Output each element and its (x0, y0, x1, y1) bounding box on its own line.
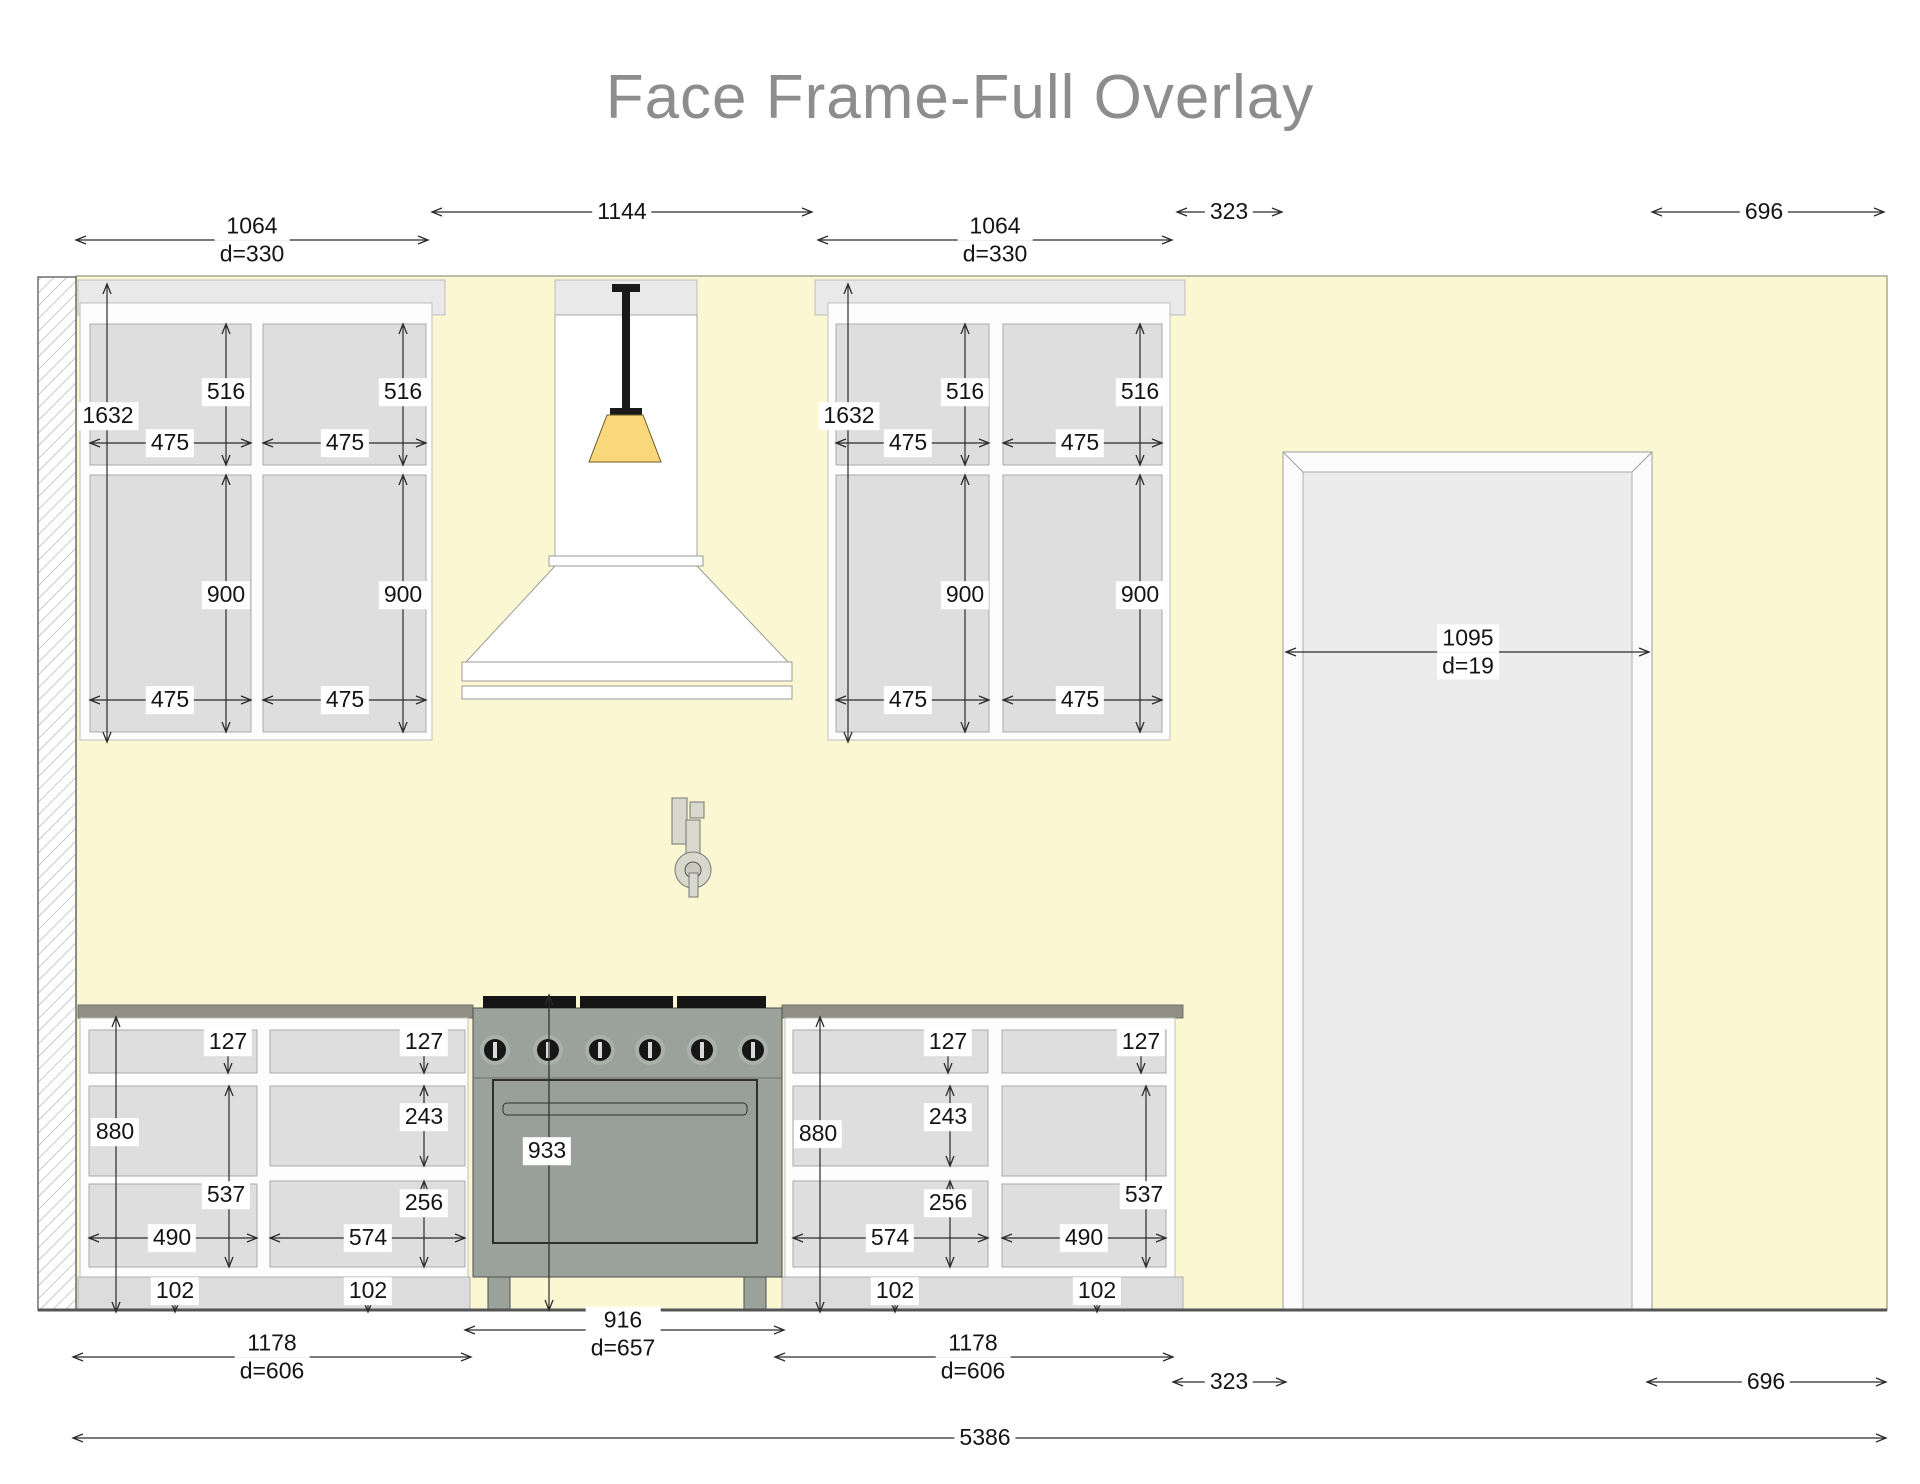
dim-value: 243 (924, 1103, 972, 1131)
dim-value: 102 (344, 1277, 392, 1305)
dim-label: 323 (1205, 1368, 1253, 1396)
dim-value: 574 (344, 1224, 392, 1252)
countertop-left (78, 1005, 473, 1018)
dim-value: 475 (321, 429, 369, 457)
door-panel (1303, 472, 1632, 1310)
dim-value: 1064 (958, 212, 1033, 240)
dim-depth-value: d=19 (1437, 652, 1499, 680)
dim-label: 537 (1120, 1181, 1168, 1209)
dim-value: 127 (1117, 1028, 1165, 1056)
dim-value: 574 (866, 1224, 914, 1252)
drawing-title: Face Frame-Full Overlay (0, 62, 1920, 133)
dim-value: 475 (884, 686, 932, 714)
burner-grate (580, 996, 673, 1008)
dim-value: 1632 (818, 402, 879, 430)
pot-filler-spout (689, 873, 698, 897)
upper-cabinet-right (828, 303, 1170, 740)
dim-value: 516 (202, 378, 250, 406)
dim-depth-value: d=657 (586, 1334, 661, 1362)
dim-value: 490 (148, 1224, 196, 1252)
countertop-right (782, 1005, 1183, 1018)
dim-value: 900 (379, 581, 427, 609)
dim-label: 475 (321, 686, 369, 714)
dim-value: 323 (1205, 198, 1253, 226)
hood-band-upper (462, 662, 792, 681)
interior-door (1283, 452, 1652, 1310)
hood-top-rail (549, 556, 703, 566)
dim-label: 127 (400, 1028, 448, 1056)
dim-value: 916 (586, 1306, 661, 1334)
dim-value: 5386 (954, 1424, 1015, 1452)
dim-label: 916d=657 (586, 1306, 661, 1361)
dim-label: 475 (146, 686, 194, 714)
dim-value: 696 (1740, 198, 1788, 226)
toe-kick-right (782, 1277, 1183, 1310)
range (473, 996, 782, 1311)
dim-label: 102 (344, 1277, 392, 1305)
dim-label: 900 (202, 581, 250, 609)
dim-label: 490 (1060, 1224, 1108, 1252)
dim-value: 256 (924, 1189, 972, 1217)
dim-label: 1144 (592, 198, 651, 226)
pot-filler-arm-left (672, 798, 687, 844)
dim-label: 516 (202, 378, 250, 406)
dim-value: 900 (941, 581, 989, 609)
dim-label: 256 (924, 1189, 972, 1217)
dim-value: 1178 (936, 1329, 1011, 1357)
dim-value: 475 (146, 429, 194, 457)
hood-band-lower (462, 686, 792, 699)
dim-label: 475 (321, 429, 369, 457)
dim-value: 900 (202, 581, 250, 609)
pot-filler-handle (690, 802, 704, 818)
dim-label: 1632 (818, 402, 879, 430)
dim-value: 516 (941, 378, 989, 406)
dim-value: 880 (91, 1118, 139, 1146)
dim-label: 537 (202, 1181, 250, 1209)
dim-label: 516 (1116, 378, 1164, 406)
burner-grate (677, 996, 766, 1008)
dim-label: 102 (151, 1277, 199, 1305)
dim-depth-value: d=606 (235, 1357, 310, 1385)
dim-value: 475 (321, 686, 369, 714)
dim-value: 490 (1060, 1224, 1108, 1252)
dim-value: 1632 (77, 402, 138, 430)
dim-label: 475 (884, 429, 932, 457)
dim-value: 880 (794, 1120, 842, 1148)
dim-depth-value: d=330 (958, 240, 1033, 268)
dim-label: 475 (884, 686, 932, 714)
dim-value: 900 (1116, 581, 1164, 609)
dim-label: 127 (924, 1028, 972, 1056)
dim-value: 323 (1205, 1368, 1253, 1396)
dim-label: 574 (344, 1224, 392, 1252)
dim-value: 933 (523, 1137, 571, 1165)
knob-slot (700, 1042, 704, 1058)
dim-label: 475 (1056, 686, 1104, 714)
dim-label: 696 (1740, 198, 1788, 226)
dim-value: 516 (379, 378, 427, 406)
dim-label: 696 (1742, 1368, 1790, 1396)
dim-label: 243 (400, 1103, 448, 1131)
knob-slot (751, 1042, 755, 1058)
knob-slot (493, 1042, 497, 1058)
dim-value: 1064 (215, 212, 290, 240)
dim-label: 1178d=606 (936, 1329, 1011, 1384)
dim-value: 102 (1073, 1277, 1121, 1305)
dim-value: 475 (146, 686, 194, 714)
dim-value: 127 (400, 1028, 448, 1056)
dim-label: 243 (924, 1103, 972, 1131)
range-leg (488, 1277, 510, 1311)
dim-label: 516 (941, 378, 989, 406)
dim-label: 900 (379, 581, 427, 609)
dim-value: 1178 (235, 1329, 310, 1357)
dim-label: 900 (1116, 581, 1164, 609)
dim-label: 1064d=330 (215, 212, 290, 267)
dim-label: 323 (1205, 198, 1253, 226)
knob-slot (648, 1042, 652, 1058)
burner-grate (483, 996, 576, 1008)
dim-value: 1095 (1437, 624, 1499, 652)
range-leg (744, 1277, 766, 1311)
dim-value: 537 (202, 1181, 250, 1209)
pendant-rod (622, 284, 630, 412)
dim-value: 537 (1120, 1181, 1168, 1209)
oven-handle (503, 1103, 747, 1115)
cabinet-door-panel (1002, 1086, 1166, 1176)
dim-label: 1095d=19 (1437, 624, 1499, 679)
dim-value: 475 (1056, 429, 1104, 457)
kitchen-elevation-page: Face Frame-Full Overlay (0, 0, 1920, 1484)
dim-label: 900 (941, 581, 989, 609)
toe-kick-left (78, 1277, 470, 1310)
dim-label: 880 (91, 1118, 139, 1146)
dim-value: 243 (400, 1103, 448, 1131)
dim-label: 1178d=606 (235, 1329, 310, 1384)
dim-depth-value: d=606 (936, 1357, 1011, 1385)
knob-slot (598, 1042, 602, 1058)
dim-label: 127 (1117, 1028, 1165, 1056)
dim-value: 1144 (592, 198, 651, 226)
dim-value: 102 (871, 1277, 919, 1305)
dim-depth-value: d=330 (215, 240, 290, 268)
dim-label: 475 (1056, 429, 1104, 457)
dim-value: 475 (1056, 686, 1104, 714)
dim-label: 1064d=330 (958, 212, 1033, 267)
dim-label: 102 (871, 1277, 919, 1305)
dim-label: 516 (379, 378, 427, 406)
dim-label: 256 (400, 1189, 448, 1217)
dim-value: 516 (1116, 378, 1164, 406)
dim-label: 933 (523, 1137, 571, 1165)
dim-value: 256 (400, 1189, 448, 1217)
dim-label: 102 (1073, 1277, 1121, 1305)
dim-label: 490 (148, 1224, 196, 1252)
dim-value: 696 (1742, 1368, 1790, 1396)
dim-value: 127 (204, 1028, 252, 1056)
dim-value: 475 (884, 429, 932, 457)
dim-label: 1632 (77, 402, 138, 430)
side-wall-section (38, 277, 76, 1310)
upper-cabinet-left (80, 303, 432, 740)
dim-value: 127 (924, 1028, 972, 1056)
dim-label: 475 (146, 429, 194, 457)
dim-label: 880 (794, 1120, 842, 1148)
dim-value: 102 (151, 1277, 199, 1305)
dim-label: 574 (866, 1224, 914, 1252)
dim-label: 127 (204, 1028, 252, 1056)
dim-label: 5386 (954, 1424, 1015, 1452)
